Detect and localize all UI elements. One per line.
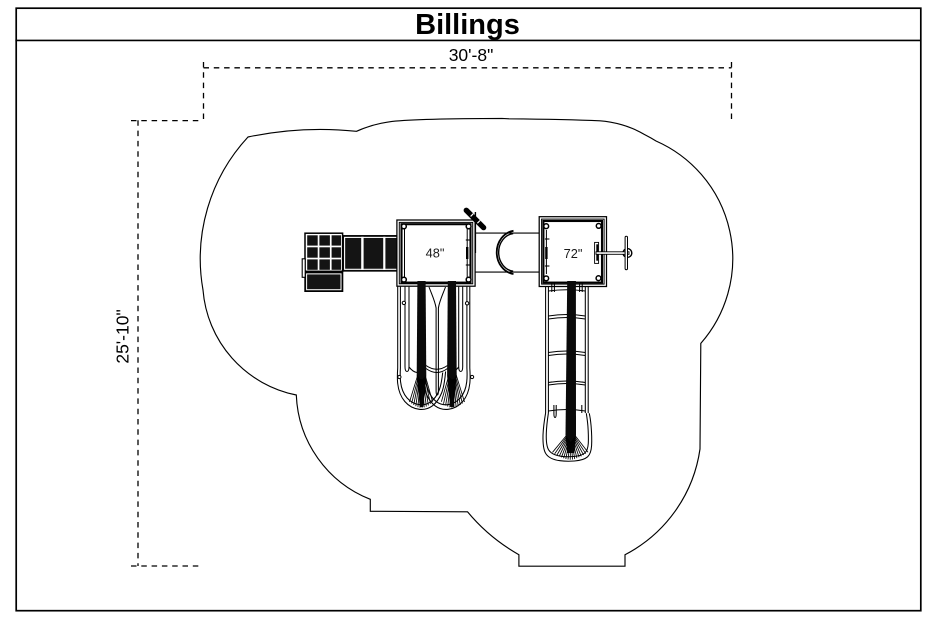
- svg-text:72": 72": [564, 246, 583, 261]
- svg-text:Billings: Billings: [415, 9, 520, 41]
- svg-text:48": 48": [426, 246, 445, 261]
- svg-text:30'-8": 30'-8": [449, 45, 494, 65]
- svg-text:25'-10": 25'-10": [113, 309, 133, 363]
